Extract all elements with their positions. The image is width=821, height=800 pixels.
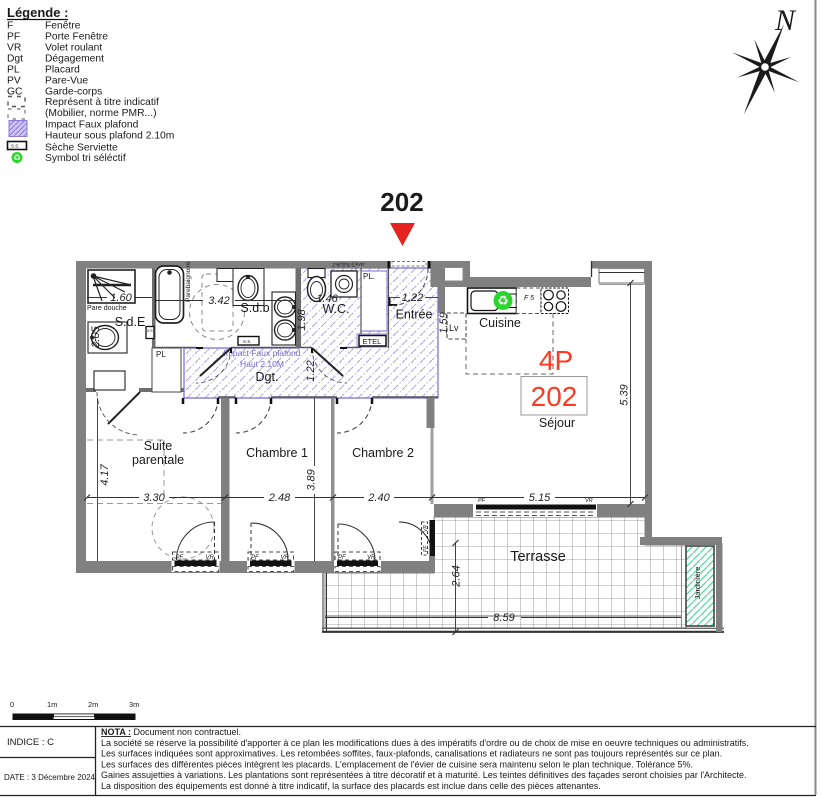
svg-text:machine à laver: machine à laver [333,262,365,267]
svg-text:PL.: PL. [363,272,375,281]
svg-text:PF: PF [7,31,20,42]
svg-text:PF: PF [478,498,486,504]
svg-text:1.60: 1.60 [110,292,132,304]
svg-text:1.98: 1.98 [296,308,308,330]
svg-text:parentale: parentale [132,453,184,467]
svg-text:GC: GC [7,86,23,97]
svg-text:S.S.: S.S. [243,339,252,344]
svg-text:5.39: 5.39 [619,384,631,405]
svg-text:S.S: S.S [147,329,153,333]
svg-text:W.C.: W.C. [322,302,349,316]
svg-text:Gaines assujetties à variation: Gaines assujetties à variations. Les pla… [101,770,747,780]
svg-text:S.d.b: S.d.b [240,301,269,315]
svg-text:202: 202 [380,187,423,217]
svg-text:N: N [774,4,797,37]
svg-text:DATE : 3 Décembre 2024: DATE : 3 Décembre 2024 [4,773,96,782]
svg-text:Pare douche: Pare douche [87,305,127,312]
svg-text:Garde-corps: Garde-corps [45,86,102,97]
svg-text:PF: PF [251,555,259,561]
svg-text:Dgt.: Dgt. [256,370,279,384]
svg-text:Terrasse: Terrasse [510,549,566,565]
svg-text:Séjour: Séjour [539,416,575,430]
svg-text:Fenêtre: Fenêtre [45,20,81,31]
svg-text:(Mobilier, norme PMR...): (Mobilier, norme PMR...) [45,108,157,119]
svg-text:2.40: 2.40 [367,492,390,504]
svg-text:La société se réserve la possi: La société se réserve la possibilité d'a… [101,738,749,748]
svg-text:1.59: 1.59 [438,312,450,333]
svg-text:Cuisine: Cuisine [479,316,521,330]
svg-text:Sèche Serviette: Sèche Serviette [45,142,118,153]
svg-text:Représent à titre indicatif: Représent à titre indicatif [45,97,159,108]
svg-text:VR: VR [585,498,593,504]
svg-text:Chambre 2: Chambre 2 [352,446,414,460]
svg-text:PL: PL [156,350,166,359]
svg-text:F 5: F 5 [524,295,534,302]
svg-text:Impact Faux plafond: Impact Faux plafond [45,120,139,131]
svg-text:2.48: 2.48 [268,492,291,504]
svg-text:3.89: 3.89 [306,469,318,490]
svg-text:4P: 4P [539,345,573,376]
svg-text:2.64: 2.64 [451,565,463,587]
svg-text:3.42: 3.42 [208,295,229,307]
svg-text:VR: VR [7,42,21,53]
svg-text:♻: ♻ [497,293,509,308]
svg-text:Volet roulant: Volet roulant [45,42,102,53]
svg-text:Hauteur sous plafond 2.10m: Hauteur sous plafond 2.10m [45,131,174,142]
svg-text:1.22: 1.22 [402,292,423,304]
svg-text:0: 0 [10,700,14,709]
svg-text:PL: PL [7,64,20,75]
svg-text:Suite: Suite [144,439,173,453]
svg-text:Dégagement: Dégagement [45,53,104,64]
svg-text:F: F [7,20,13,31]
svg-text:Haut 2.10M: Haut 2.10M [240,359,284,369]
svg-text:Pare-Vue: Pare-Vue [45,75,88,86]
svg-text:ETEL: ETEL [363,337,382,346]
svg-text:1m: 1m [47,700,57,709]
svg-text:S.d.E: S.d.E [115,315,146,329]
svg-text:Les surfaces des différentes p: Les surfaces des différentes pièces intè… [101,759,693,769]
svg-text:S.S.: S.S. [11,144,20,149]
svg-text:Impact Faux plafond: Impact Faux plafond [223,348,300,358]
svg-text:Symbol tri séléctif: Symbol tri séléctif [45,153,126,164]
svg-text:VR: VR [423,525,429,532]
svg-text:Lv: Lv [449,323,459,333]
svg-text:VR: VR [206,555,215,561]
svg-text:INDICE : C: INDICE : C [7,737,54,748]
svg-text:Entrée: Entrée [396,308,433,322]
svg-text:PV: PV [7,75,21,86]
svg-text:Jardinière: Jardinière [693,567,702,600]
svg-text:8.59: 8.59 [493,612,514,624]
svg-text:PF: PF [338,555,346,561]
svg-text:202: 202 [531,381,578,412]
svg-text:Dgt: Dgt [7,53,23,64]
svg-text:NOTA : Document non contractue: NOTA : Document non contractuel. [101,727,241,737]
svg-text:Parebaignoire: Parebaignoire [185,261,192,302]
svg-text:Porte Fenêtre: Porte Fenêtre [45,31,108,42]
svg-text:PF: PF [423,545,429,552]
svg-text:Les surfaces indiquées sont ap: Les surfaces indiquées sont approximativ… [101,749,722,759]
svg-text:La disposition des équipements: La disposition des équipements est donné… [101,781,601,791]
svg-text:1.22: 1.22 [305,360,317,381]
svg-text:2m: 2m [88,700,98,709]
svg-text:3.30: 3.30 [143,492,165,504]
svg-text:♻: ♻ [13,153,21,163]
svg-text:4.17: 4.17 [99,463,111,485]
svg-text:Placard: Placard [45,64,80,75]
svg-text:Légende :: Légende : [7,5,68,20]
svg-text:5.15: 5.15 [529,492,551,504]
svg-text:2.05: 2.05 [90,325,102,348]
svg-text:3m: 3m [129,700,139,709]
svg-text:Chambre 1: Chambre 1 [246,446,308,460]
